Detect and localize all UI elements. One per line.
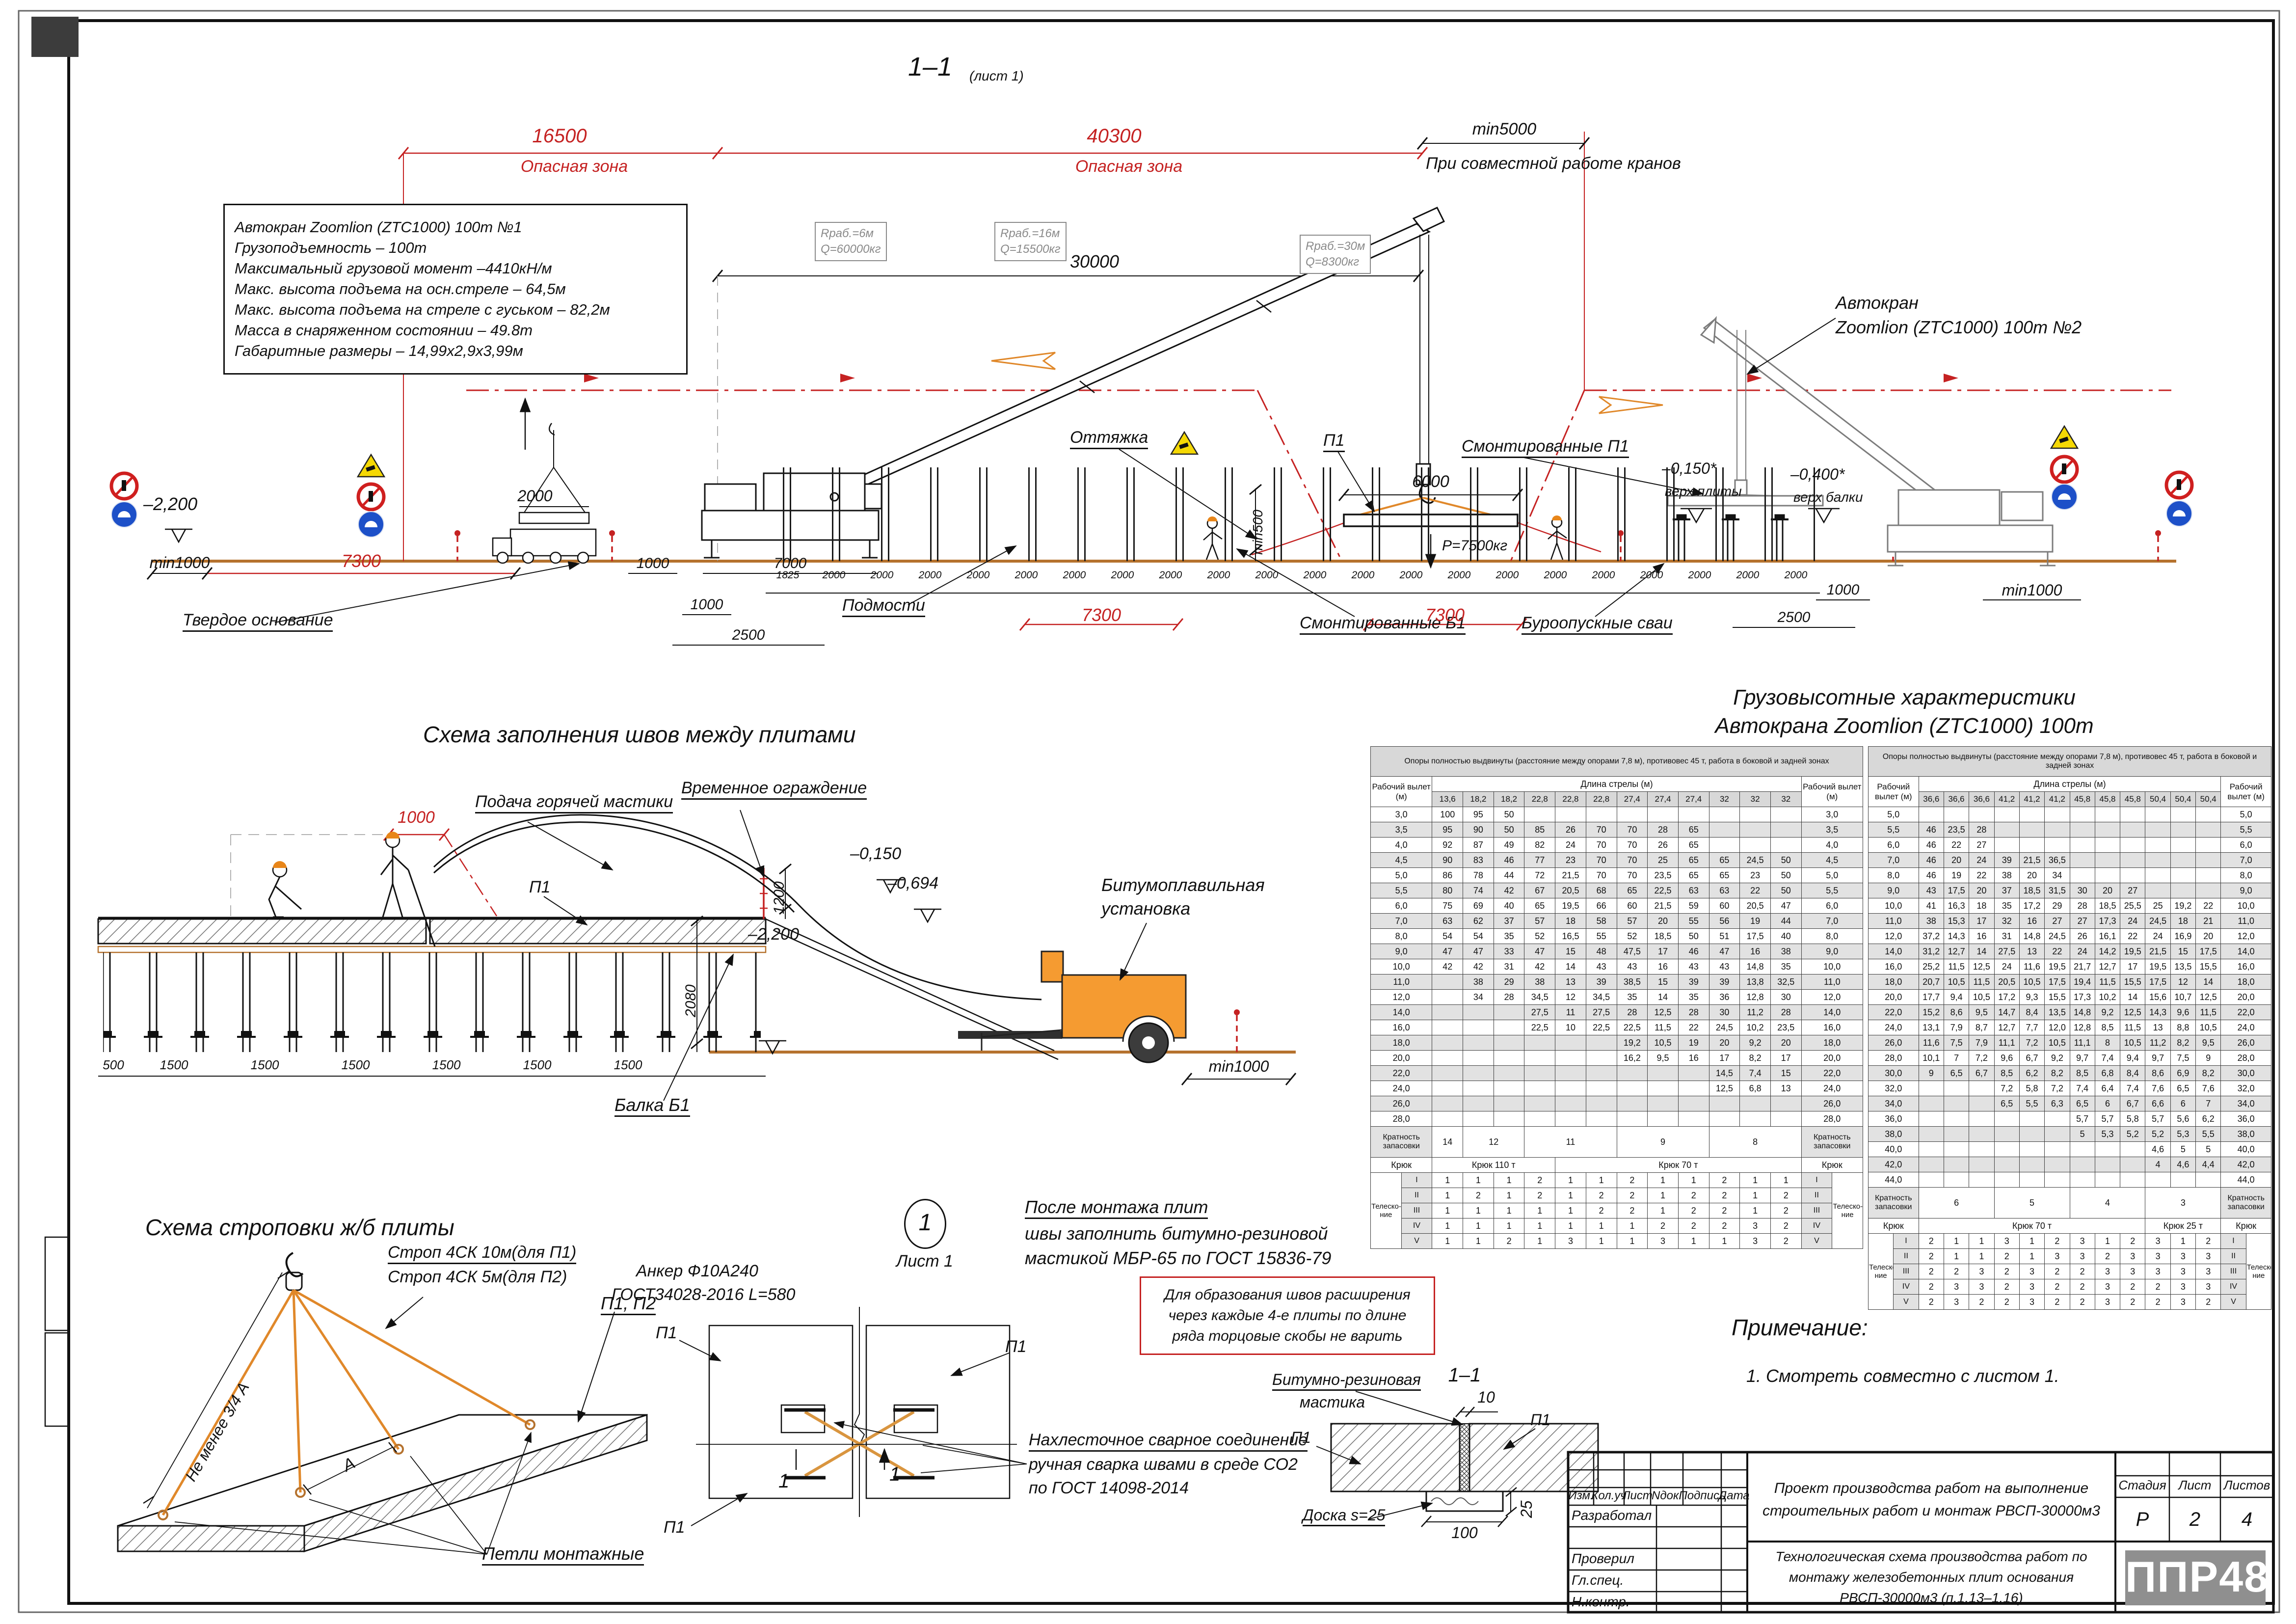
tb-role-glspec: Гл.спец. bbox=[1572, 1573, 1624, 1587]
joints-dim-1000: 1000 bbox=[398, 809, 435, 827]
joints-min1000: min1000 bbox=[1209, 1058, 1269, 1075]
tb-sub-title-3: РВСП-30000м3 (п.1.13–1.16) bbox=[1840, 1591, 2023, 1605]
min5000-dim: min5000 bbox=[1472, 121, 1536, 138]
seam-p1-left: П1 bbox=[1291, 1430, 1311, 1446]
chain-dim: 2000 bbox=[810, 569, 858, 581]
load-chart-table: Опоры полностью выдвинуты (расстояние ме… bbox=[1868, 746, 2271, 1310]
chain-dim: 500 bbox=[98, 1057, 129, 1073]
dim-2500a: 2500 bbox=[732, 627, 765, 643]
detail-sheet-ref: Лист 1 bbox=[896, 1253, 953, 1271]
mounted-p1-label: Смонтированные П1 bbox=[1462, 438, 1629, 458]
chain-dim: 1500 bbox=[310, 1057, 401, 1073]
bitumen-label-1: Битумоплавильная bbox=[1101, 876, 1265, 894]
chain-dim: 2000 bbox=[858, 569, 906, 581]
dim-2000-plate: 2000 bbox=[517, 488, 552, 505]
chain-dim: 2000 bbox=[1724, 569, 1772, 581]
chain-dim: 2000 bbox=[1387, 569, 1435, 581]
callout-r16: Rраб.=16м Q=15500кг bbox=[994, 222, 1067, 261]
anchor-label-1: Анкер Ф10А240 bbox=[636, 1263, 758, 1280]
chain-dim: 2000 bbox=[1002, 569, 1050, 581]
level-0150-sub: верх плиты bbox=[1665, 484, 1742, 498]
dim-min500: min500 bbox=[1251, 510, 1265, 555]
seam-mastic-1: Битумно-резиновая bbox=[1272, 1372, 1421, 1391]
tb-role-proveril: Проверил bbox=[1572, 1551, 1634, 1566]
weld-p1-a: П1 bbox=[656, 1325, 677, 1342]
chain-dim: 2000 bbox=[1579, 569, 1628, 581]
callout-r30: Rраб.=30м Q=8300кг bbox=[1300, 235, 1371, 274]
sign-group-right bbox=[2051, 426, 2078, 510]
view-sheet-ref: (лист 1) bbox=[969, 69, 1024, 83]
seam-dim-25: 25 bbox=[1519, 1500, 1535, 1518]
chain-dim: 2000 bbox=[1050, 569, 1098, 581]
notes-title: Примечание: bbox=[1732, 1316, 1868, 1339]
crane2-label-1: Автокран bbox=[1836, 294, 1919, 312]
sign-group-right-outer bbox=[2166, 472, 2192, 526]
joints-p1: П1 bbox=[529, 879, 551, 896]
joint-work-note: При совместной работе кранов bbox=[1426, 155, 1681, 173]
dim-6000: 6000 bbox=[1412, 473, 1449, 491]
seam-p1-right: П1 bbox=[1530, 1412, 1550, 1429]
weld-p1-c: П1 bbox=[664, 1519, 685, 1537]
spec-line: Максимальный грузовой момент –4410кН/м bbox=[235, 258, 676, 279]
tb-sub-title-1: Технологическая схема производства работ… bbox=[1775, 1549, 2087, 1564]
guy-rope-label: Оттяжка bbox=[1070, 429, 1148, 449]
dim-2500r: 2500 bbox=[1778, 610, 1811, 625]
chain-dim: 2000 bbox=[1195, 569, 1243, 581]
seam-title: 1–1 bbox=[1448, 1365, 1481, 1385]
beam-spacing-chain: 500150015001500150015001500 bbox=[98, 1057, 673, 1073]
chain-dim: 1500 bbox=[583, 1057, 673, 1073]
joints-dim-2080: 2080 bbox=[683, 984, 699, 1017]
warning-triangle-center bbox=[1171, 432, 1198, 454]
chain-dim: 2000 bbox=[1483, 569, 1531, 581]
firm-base-label: Твердое основание bbox=[183, 612, 333, 632]
tb-role-razrabotal: Разработал bbox=[1572, 1508, 1652, 1522]
tb-doc-title-1: Проект производства работ на выполнение bbox=[1774, 1481, 2088, 1496]
danger-dim-left: 16500 bbox=[532, 126, 587, 146]
chain-dim: 2000 bbox=[1339, 569, 1387, 581]
piles-label: Буроопускные сваи bbox=[1522, 615, 1673, 635]
chain-dim: 2000 bbox=[1435, 569, 1483, 581]
weld-note-2: ручная сварка швами в среде СО2 bbox=[1029, 1456, 1298, 1474]
min1000-left: min1000 bbox=[150, 555, 210, 571]
sign-group-left bbox=[358, 455, 384, 537]
detail-number-circle: 1 bbox=[904, 1199, 946, 1249]
drawing-sheet: 1–1 (лист 1) 16500 Опасная зона 40300 Оп… bbox=[0, 0, 2296, 1624]
load-7500: Р=7500кг bbox=[1442, 538, 1507, 554]
dim-7000: 7000 bbox=[774, 556, 807, 571]
chain-dim: 1500 bbox=[129, 1057, 219, 1073]
pile-spacing-chain: 1825200020002000200020002000200020002000… bbox=[766, 569, 1820, 581]
level-minus-2200: –2,200 bbox=[748, 926, 799, 944]
level-minus-0150: –0,150 bbox=[850, 845, 901, 863]
level-0150: –0,150* bbox=[1662, 460, 1716, 477]
cut-mark-1b: 1 bbox=[889, 1464, 900, 1485]
ppr48-logo: ППР48 bbox=[2125, 1550, 2266, 1605]
tb-role-nkontr: Н.контр. bbox=[1572, 1595, 1630, 1609]
weld-detail bbox=[679, 1307, 1027, 1526]
tb-stage-label: Стадия bbox=[2118, 1479, 2166, 1492]
p1-lifted-label: П1 bbox=[1323, 432, 1345, 452]
tb-doc-title-2: строительных работ и монтаж РВСП-30000м3 bbox=[1762, 1503, 2100, 1519]
mastic-note-2: швы заполнить битумно-резиновой bbox=[1025, 1224, 1328, 1243]
load-chart-table: Опоры полностью выдвинуты (расстояние ме… bbox=[1370, 746, 1863, 1249]
tb-col-koluch: Кол.уч bbox=[1591, 1489, 1627, 1502]
joints-dim-1200: 1200 bbox=[772, 881, 787, 914]
expansion-warning-box: Для образования швов расширения через ка… bbox=[1140, 1276, 1435, 1355]
tb-col-data: Дата bbox=[1718, 1489, 1749, 1502]
seam-dim-10: 10 bbox=[1477, 1389, 1495, 1406]
weld-note-3: по ГОСТ 14098-2014 bbox=[1029, 1480, 1189, 1497]
chain-dim: 1500 bbox=[492, 1057, 583, 1073]
seam-dim-100: 100 bbox=[1451, 1525, 1477, 1542]
dim-7300a: 7300 bbox=[1082, 606, 1121, 624]
danger-label-right: Опасная зона bbox=[1075, 158, 1182, 176]
char-title: Грузовысотные характеристики Автокрана Z… bbox=[1536, 683, 2272, 740]
min1000-right: min1000 bbox=[2002, 582, 2062, 599]
bored-piles-row bbox=[768, 467, 1816, 561]
dim-30000: 30000 bbox=[1070, 252, 1119, 271]
tb-col-izm: Изм. bbox=[1568, 1489, 1593, 1502]
danger-label-left: Опасная зона bbox=[521, 158, 628, 176]
dim-1000r: 1000 bbox=[1827, 582, 1860, 598]
dim-1000b: 1000 bbox=[691, 597, 723, 613]
danger-dim-right: 40300 bbox=[1087, 126, 1141, 146]
anchor-label-2: ГОСТ34028-2016 L=580 bbox=[612, 1286, 795, 1304]
tb-sheet-value: 2 bbox=[2189, 1509, 2200, 1530]
beam-b1-label: Балка Б1 bbox=[614, 1096, 690, 1117]
chain-dim: 2000 bbox=[1098, 569, 1147, 581]
chain-dim: 1500 bbox=[401, 1057, 492, 1073]
fence-label: Временное ограждение bbox=[681, 780, 867, 800]
mastic-note-1: После монтажа плит bbox=[1025, 1198, 1208, 1219]
chain-dim: 2000 bbox=[1628, 569, 1676, 581]
mastic-feed-label: Подача горячей мастики bbox=[475, 793, 673, 813]
spec-line: Масса в снаряженном состоянии – 49.8т bbox=[235, 320, 676, 341]
sling-title: Схема строповки ж/б плиты bbox=[145, 1216, 454, 1239]
loops-label: Петли монтажные bbox=[482, 1544, 644, 1566]
sign-group-left-outer bbox=[111, 473, 137, 527]
spec-line: Макс. высота подъема на осн.стреле – 64,… bbox=[235, 279, 676, 299]
level-0400: –0,400* bbox=[1790, 466, 1844, 483]
weld-note-1: Нахлесточное сварное соединение bbox=[1029, 1432, 1308, 1452]
notes-item-1: 1. Смотреть совместно с листом 1. bbox=[1746, 1367, 2059, 1385]
dim-7300-left: 7300 bbox=[342, 552, 381, 570]
mastic-note-3: мастикой МБР-65 по ГОСТ 15836-79 bbox=[1025, 1249, 1331, 1268]
tb-col-list: Лист bbox=[1622, 1489, 1653, 1502]
spec-line: Макс. высота подъема на стреле с гуськом… bbox=[235, 299, 676, 320]
chain-dim: 2000 bbox=[1147, 569, 1195, 581]
sling2-label: Строп 4СК 5м(для П2) bbox=[388, 1269, 567, 1286]
chain-dim: 2000 bbox=[954, 569, 1002, 581]
tb-sheets-value: 4 bbox=[2242, 1509, 2252, 1530]
view-title: 1–1 bbox=[908, 53, 952, 81]
spec-line: Габаритные размеры – 14,99х2,9х3,99м bbox=[235, 341, 676, 361]
tb-stage-value: Р bbox=[2136, 1509, 2149, 1530]
crane2-label-2: Zoomlion (ZTC1000) 100т №2 bbox=[1836, 318, 2082, 337]
tb-sheets-label: Листов bbox=[2224, 1479, 2270, 1492]
delivery-truck bbox=[493, 399, 596, 563]
joints-title: Схема заполнения швов между плитами bbox=[423, 723, 855, 746]
tb-col-ndok: Nдок. bbox=[1652, 1489, 1682, 1502]
chain-dim: 1500 bbox=[219, 1057, 310, 1073]
weld-p1-b: П1 bbox=[1005, 1338, 1027, 1356]
chain-dim: 2000 bbox=[1291, 569, 1339, 581]
tb-sub-title-2: монтажу железобетонных плит основания bbox=[1789, 1570, 2074, 1584]
chain-dim: 2000 bbox=[906, 569, 954, 581]
crane1-spec-box: Автокран Zoomlion (ZTC1000) 100т №1 Груз… bbox=[223, 204, 688, 375]
dim-7300b: 7300 bbox=[1425, 606, 1465, 624]
chain-dim: 2000 bbox=[1772, 569, 1820, 581]
board-label: Доска s=25 bbox=[1303, 1507, 1385, 1526]
chain-dim: 2000 bbox=[1531, 569, 1579, 581]
level-minus-0694: –0,694 bbox=[887, 875, 938, 893]
sling1-label: Строп 4СК 10м(для П1) bbox=[388, 1244, 576, 1264]
dim-1000a: 1000 bbox=[637, 556, 669, 571]
chain-dim: 2000 bbox=[1243, 569, 1291, 581]
spec-line: Автокран Zoomlion (ZTC1000) 100т №1 bbox=[235, 217, 676, 238]
level-0400-sub: верх балки bbox=[1793, 490, 1863, 504]
sling-scheme bbox=[118, 1253, 647, 1554]
cut-mark-1a: 1 bbox=[778, 1471, 789, 1491]
chain-dim: 1825 bbox=[766, 569, 810, 581]
load-chart-1: Опоры полностью выдвинуты (расстояние ме… bbox=[1370, 746, 1863, 1249]
tb-sheet-label: Лист bbox=[2179, 1479, 2212, 1492]
chain-dim: 2000 bbox=[1676, 569, 1724, 581]
bitumen-label-2: установка bbox=[1101, 899, 1190, 918]
level-2200-left: –2,200 bbox=[143, 495, 197, 514]
scaffold-label: Подмости bbox=[842, 597, 925, 617]
spec-line: Грузоподъемность – 100т bbox=[235, 238, 676, 258]
seam-mastic-2: мастика bbox=[1300, 1394, 1365, 1411]
load-chart-2: Опоры полностью выдвинуты (расстояние ме… bbox=[1868, 746, 2271, 1310]
callout-r6: Rраб.=6м Q=60000кг bbox=[815, 222, 887, 261]
